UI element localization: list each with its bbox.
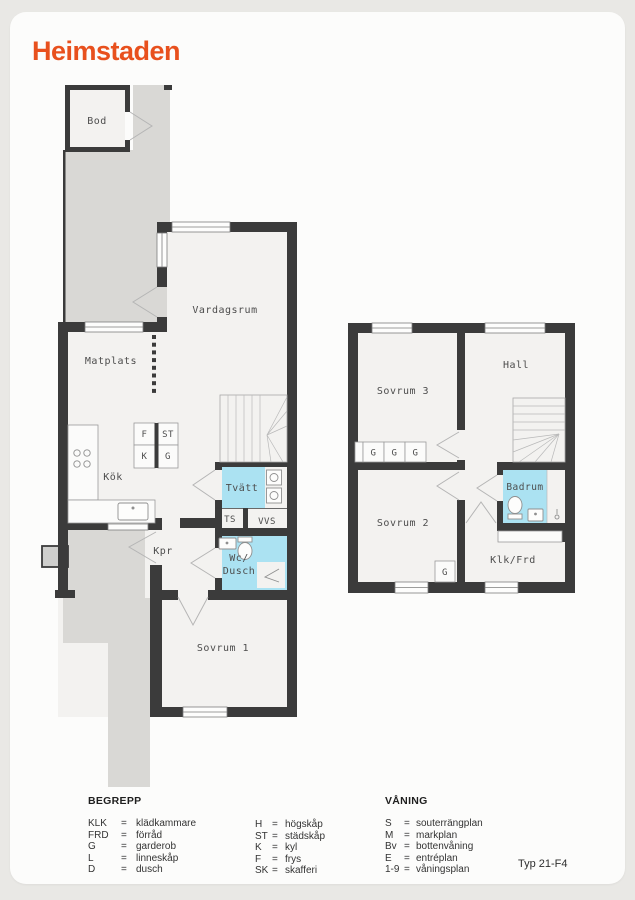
legend-eq: = [404, 830, 416, 842]
room-label-klk-frd: Klk/Frd [490, 555, 536, 566]
legend-row: 1-9=våningsplan [385, 864, 483, 876]
legend-abbr: SK [255, 865, 272, 877]
legend-def: städskåp [285, 831, 325, 843]
legend-eq: = [121, 841, 136, 853]
legend-eq: = [272, 854, 285, 866]
room-label-sovrum2: Sovrum 2 [377, 518, 429, 529]
legend-eq: = [121, 853, 136, 865]
legend-abbr: E [385, 853, 404, 865]
legend-eq: = [272, 831, 285, 843]
legend-abbr: KLK [88, 818, 121, 830]
entrance-porch [68, 530, 145, 598]
wardrobe-label-g4: G [442, 568, 448, 578]
legend-row: H=högskåp [255, 819, 325, 831]
legend-row: S=souterrängplan [385, 818, 483, 830]
legend-row: Bv=bottenvåning [385, 841, 483, 853]
room-label-sovrum3: Sovrum 3 [377, 386, 429, 397]
room-label-vvs: VVS [258, 517, 276, 527]
washer-icon [267, 470, 282, 485]
room-label-tvatt: Tvätt [226, 483, 259, 494]
room-label-wc-line1: Wc/ [229, 553, 249, 564]
legend-abbr: L [88, 853, 121, 865]
legend-row: G=garderob [88, 841, 196, 853]
wardrobe-label-g3: G [413, 449, 419, 459]
legend-def: bottenvåning [416, 841, 473, 853]
legend-abbr: G [88, 841, 121, 853]
legend-abbr: S [385, 818, 404, 830]
legend-def: garderob [136, 841, 176, 853]
legend-eq: = [404, 853, 416, 865]
upper-staircase [513, 398, 565, 462]
room-label-matplats: Matplats [85, 356, 137, 367]
closet-shelf [498, 531, 562, 542]
legend-abbr: H [255, 819, 272, 831]
legend-abbr: D [88, 864, 121, 876]
legend-def: entréplan [416, 853, 458, 865]
legend-eq: = [404, 818, 416, 830]
wardrobe-label-g2: G [392, 449, 398, 459]
room-label-hall: Hall [503, 360, 529, 371]
legend-eq: = [121, 818, 136, 830]
legend-abbr: K [255, 842, 272, 854]
kitchen-sink-icon [118, 503, 148, 520]
legend-def: linneskåp [136, 853, 178, 865]
legend-eq: = [272, 865, 285, 877]
cabinet-label-st: ST [162, 430, 174, 440]
room-label-ts: TS [224, 515, 236, 525]
legend-row: K=kyl [255, 842, 325, 854]
legend-def: skafferi [285, 865, 317, 877]
legend-row: D=dusch [88, 864, 196, 876]
legend-abbr: F [255, 854, 272, 866]
legend-def: våningsplan [416, 864, 469, 876]
legend-def: kyl [285, 842, 297, 854]
legend-row: E=entréplan [385, 853, 483, 865]
legend-begrepp-title: BEGREPP [88, 795, 196, 807]
cabinet-block: F ST K G [134, 423, 178, 468]
room-label-wc-line2: Dusch [223, 566, 256, 577]
cabinet-label-g: G [165, 452, 171, 462]
legend-begrepp-col2: H=högskåp ST=städskåp K=kyl F=frys SK=sk… [255, 819, 325, 877]
legend-eq: = [404, 864, 416, 876]
room-label-bod: Bod [87, 116, 107, 127]
room-label-vardagsrum: Vardagsrum [192, 305, 257, 316]
legend-abbr: 1-9 [385, 864, 404, 876]
cabinet-label-k: K [142, 452, 148, 462]
legend-row: ST=städskåp [255, 831, 325, 843]
legend-eq: = [272, 819, 285, 831]
room-label-kpr: Kpr [153, 546, 173, 557]
legend-begrepp: BEGREPP KLK=klädkammare FRD=förråd G=gar… [88, 795, 196, 876]
legend-vaning: VÅNING S=souterrängplan M=markplan Bv=bo… [385, 795, 483, 876]
legend-row: M=markplan [385, 830, 483, 842]
upper-floor-plan: G G G G Sovrum 3 Hall Sovrum 2 Badrum Kl… [345, 320, 578, 595]
legend-vaning-title: VÅNING [385, 795, 483, 807]
brand-logo: Heimstaden [32, 36, 180, 67]
room-label-badrum: Badrum [506, 482, 543, 493]
legend-row: F=frys [255, 854, 325, 866]
legend-def: förråd [136, 830, 162, 842]
legend-def: souterrängplan [416, 818, 483, 830]
dryer-icon [267, 488, 282, 503]
legend-abbr: ST [255, 831, 272, 843]
legend-eq: = [404, 841, 416, 853]
cabinet-label-f: F [142, 430, 148, 440]
legend-abbr: FRD [88, 830, 121, 842]
legend-def: klädkammare [136, 818, 196, 830]
wardrobe-label-g1: G [371, 449, 377, 459]
legend-eq: = [272, 842, 285, 854]
ground-floor-plan: F ST K G Bod Vardagsrum Matplats Kök Tvä… [55, 85, 305, 790]
legend-row: L=linneskåp [88, 853, 196, 865]
staircase [220, 395, 287, 462]
legend-def: markplan [416, 830, 457, 842]
room-label-sovrum1: Sovrum 1 [197, 643, 249, 654]
plan-type-label: Typ 21-F4 [518, 858, 568, 870]
legend-abbr: Bv [385, 841, 404, 853]
legend-def: frys [285, 854, 301, 866]
legend-abbr: M [385, 830, 404, 842]
legend-eq: = [121, 830, 136, 842]
room-label-kok: Kök [103, 472, 123, 483]
legend-row: SK=skafferi [255, 865, 325, 877]
legend-eq: = [121, 864, 136, 876]
bathroom [503, 470, 565, 523]
legend-def: dusch [136, 864, 163, 876]
legend-row: FRD=förråd [88, 830, 196, 842]
toilet-icon [508, 497, 522, 514]
legend-def: högskåp [285, 819, 323, 831]
legend-row: KLK=klädkammare [88, 818, 196, 830]
